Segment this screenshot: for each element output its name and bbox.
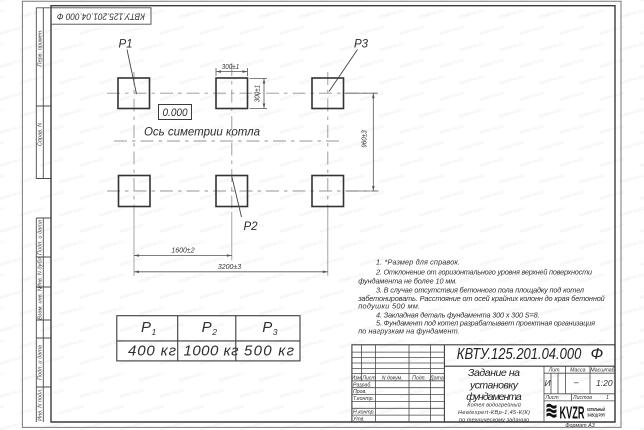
svg-text:Инв. N дубл.: Инв. N дубл. xyxy=(38,256,44,288)
svg-text:3200±3: 3200±3 xyxy=(218,264,241,271)
svg-text:Лист: Лист xyxy=(361,376,376,382)
svg-text:по нагрузкам на фундамент.: по нагрузкам на фундамент. xyxy=(358,327,460,336)
svg-text:фундамента не более 10 мм.: фундамента не более 10 мм. xyxy=(358,277,457,286)
svg-text:P: P xyxy=(262,319,272,336)
svg-text:–: – xyxy=(573,377,579,387)
svg-text:Пров.: Пров. xyxy=(353,389,367,395)
svg-text:N докум.: N докум. xyxy=(382,376,403,382)
svg-text:2: 2 xyxy=(211,327,217,337)
svg-text:P1: P1 xyxy=(119,39,133,51)
svg-text:P2: P2 xyxy=(244,221,259,233)
svg-text:Т.контр.: Т.контр. xyxy=(353,396,374,402)
svg-text:установку: установку xyxy=(469,379,519,391)
svg-text:Ось симетрии котла: Ось симетрии котла xyxy=(144,125,260,139)
svg-text:3: 3 xyxy=(273,327,278,337)
svg-text:Масштаб: Масштаб xyxy=(590,368,615,374)
svg-text:1: 1 xyxy=(152,327,157,337)
svg-text:Лит.: Лит. xyxy=(548,368,561,374)
svg-text:И: И xyxy=(545,378,552,388)
svg-text:КВТУ.125.201.04.000: КВТУ.125.201.04.000 xyxy=(457,346,582,363)
svg-text:Разраб.: Разраб. xyxy=(353,382,372,388)
svg-text:Дата: Дата xyxy=(429,376,444,382)
svg-text:Лист: Лист xyxy=(544,395,559,401)
svg-text:P: P xyxy=(141,319,151,336)
svg-text:0.000: 0.000 xyxy=(163,107,189,119)
svg-text:Листов: Листов xyxy=(572,395,592,401)
svg-text:КВТУ.125.201.04.000 Ф: КВТУ.125.201.04.000 Ф xyxy=(57,12,145,22)
svg-text:Подп.: Подп. xyxy=(412,376,426,382)
svg-text:Справ. N: Справ. N xyxy=(38,122,44,146)
svg-text:1:20: 1:20 xyxy=(596,378,613,388)
svg-text:Масса: Масса xyxy=(570,368,585,374)
svg-text:ЗАВОД РЭП: ЗАВОД РЭП xyxy=(587,413,605,418)
svg-text:Перв. примен.: Перв. примен. xyxy=(38,29,44,66)
svg-text:1: 1 xyxy=(606,395,609,401)
svg-text:Подп. и дата: Подп. и дата xyxy=(38,345,44,380)
svg-text:Инв. N подл.: Инв. N подл. xyxy=(38,388,44,421)
svg-text:Н.контр.: Н.контр. xyxy=(353,410,375,416)
svg-text:1000 кг: 1000 кг xyxy=(184,343,240,360)
svg-text:Котел водогрейный: Котел водогрейный xyxy=(467,401,521,408)
svg-text:1. *Размер для справок.: 1. *Размер для справок. xyxy=(376,257,460,266)
svg-text:P: P xyxy=(202,319,212,336)
svg-text:Утв.: Утв. xyxy=(353,416,365,422)
svg-text:Формат А3: Формат А3 xyxy=(565,423,595,429)
svg-text:фундамента: фундамента xyxy=(466,391,522,403)
svg-text:500 кг: 500 кг xyxy=(244,343,295,360)
svg-text:подушки 500 мм.: подушки 500 мм. xyxy=(358,302,420,311)
svg-text:Изм.: Изм. xyxy=(351,376,362,382)
svg-text:2. Отклонение от горизонтально: 2. Отклонение от горизонтального уровня … xyxy=(375,267,592,276)
svg-text:KVZR: KVZR xyxy=(560,402,585,422)
svg-text:Взам. инв. N: Взам. инв. N xyxy=(38,286,44,320)
svg-text:400 кг: 400 кг xyxy=(128,343,177,360)
svg-text:1600±2: 1600±2 xyxy=(171,248,194,255)
svg-text:по техническому заданию: по техническому заданию xyxy=(459,417,529,423)
svg-text:КОТЕЛЬНЫЙ: КОТЕЛЬНЫЙ xyxy=(587,407,605,412)
svg-text:P3: P3 xyxy=(354,39,369,51)
svg-text:Подп. и дата: Подп. и дата xyxy=(38,220,44,255)
svg-text:960±3: 960±3 xyxy=(362,130,369,148)
svg-text:300±1: 300±1 xyxy=(222,64,240,71)
svg-text:Задание на: Задание на xyxy=(468,367,520,379)
svg-text:300±1: 300±1 xyxy=(255,85,262,103)
svg-text:Heatexpert-КВр-1,45-К(К): Heatexpert-КВр-1,45-К(К) xyxy=(458,410,530,416)
svg-text:Ф: Ф xyxy=(591,346,604,363)
